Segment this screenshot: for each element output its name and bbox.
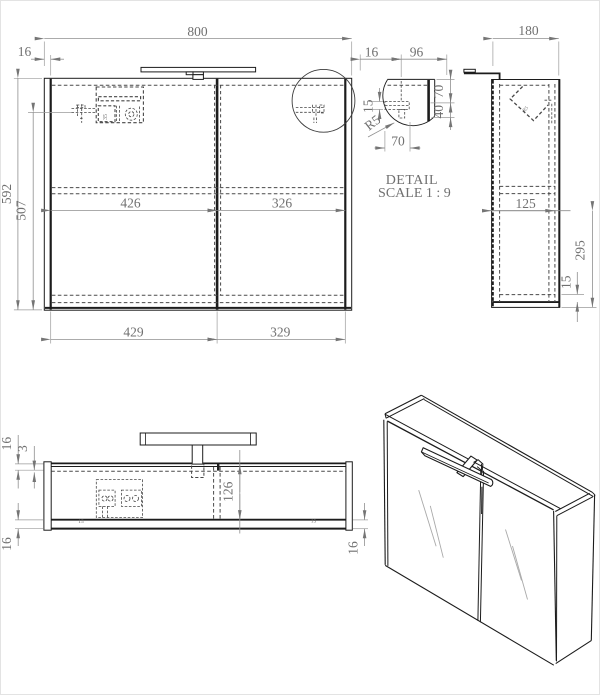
svg-text:329: 329 xyxy=(270,325,291,340)
svg-text:180: 180 xyxy=(518,23,539,38)
svg-text:15: 15 xyxy=(558,275,573,289)
svg-text:295: 295 xyxy=(573,240,588,261)
svg-text:16: 16 xyxy=(0,437,14,451)
svg-text:126: 126 xyxy=(220,481,235,502)
svg-text:507: 507 xyxy=(13,200,28,221)
svg-text:429: 429 xyxy=(123,325,144,340)
svg-text:16: 16 xyxy=(345,541,360,555)
svg-text:16: 16 xyxy=(0,537,14,551)
svg-text:16: 16 xyxy=(365,44,379,59)
svg-text:35: 35 xyxy=(103,114,109,120)
svg-text:592: 592 xyxy=(0,184,14,204)
svg-text:96: 96 xyxy=(410,44,424,59)
svg-text:125: 125 xyxy=(515,196,536,211)
svg-text:426: 426 xyxy=(120,196,141,211)
svg-text:16: 16 xyxy=(18,44,32,59)
svg-text:3: 3 xyxy=(15,445,30,452)
svg-text:15: 15 xyxy=(311,519,317,525)
svg-text:15: 15 xyxy=(78,519,84,525)
svg-text:R5: R5 xyxy=(522,106,530,114)
svg-text:800: 800 xyxy=(187,24,208,39)
svg-text:70: 70 xyxy=(431,85,446,99)
svg-text:SCALE 1 : 9: SCALE 1 : 9 xyxy=(378,186,451,201)
svg-text:326: 326 xyxy=(272,196,293,211)
svg-text:15: 15 xyxy=(360,99,375,113)
svg-text:40: 40 xyxy=(431,105,446,119)
svg-text:70: 70 xyxy=(391,133,405,148)
